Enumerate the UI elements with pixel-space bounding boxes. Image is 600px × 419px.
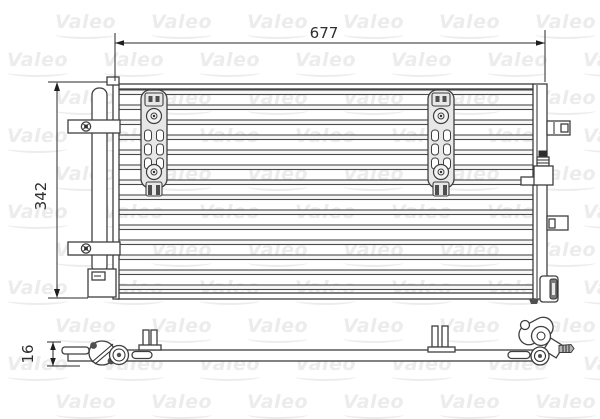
core-tube [119, 195, 533, 200]
condenser-technical-drawing: 677 342 [0, 0, 600, 400]
bracket-tab-left [139, 330, 161, 350]
port-cap [539, 151, 547, 157]
bar-slot-left [132, 352, 152, 359]
condenser-bottom-view: 16 [19, 314, 574, 366]
core-tube [119, 255, 533, 260]
core-tube [119, 135, 533, 140]
arrow-down-icon [54, 289, 60, 298]
top-left-tab [107, 77, 119, 85]
bar-slot-right [508, 352, 530, 359]
threaded-pin [559, 345, 574, 353]
bottom-right-foot [529, 299, 539, 304]
dimension-width: 677 [115, 24, 545, 82]
core-tubes [119, 90, 533, 290]
core-tube [119, 180, 533, 185]
drier-clamp-upper [68, 120, 120, 133]
core-tube [119, 90, 533, 95]
arrow-left-icon [115, 40, 124, 46]
arrow-right-icon [536, 40, 545, 46]
technical-drawing-page: { "watermark": { "text": "Valeo" }, "dim… [0, 0, 600, 400]
core-tube [119, 225, 533, 230]
dimension-height-label: 342 [32, 182, 50, 211]
mounting-bracket [141, 90, 167, 196]
core-tube [119, 240, 533, 245]
bracket-tab-middle [428, 326, 455, 352]
arrow-up-icon [54, 82, 60, 91]
core-tube [119, 105, 533, 110]
drier-clamp-lower [68, 242, 120, 255]
lower-right-connector [547, 216, 568, 230]
mounting-bracket [428, 90, 454, 196]
core-bottom-bar [117, 293, 533, 299]
receiver-drier [68, 88, 120, 297]
core-tube [119, 210, 533, 215]
condenser-front-view: 677 342 [32, 24, 570, 304]
bottom-right-valve-block [540, 276, 558, 302]
core-tube [119, 150, 533, 155]
right-tank [533, 84, 547, 299]
core-tube [119, 165, 533, 170]
arrow-up-icon [50, 342, 56, 350]
core-top-bar [117, 84, 533, 89]
left-header [113, 84, 119, 299]
dimension-depth-label: 16 [19, 344, 37, 363]
upper-right-connector [547, 121, 570, 135]
core-tube [119, 285, 533, 290]
core-tube [119, 270, 533, 275]
arrow-down-icon [50, 358, 56, 366]
core-tube [119, 120, 533, 125]
dimension-width-label: 677 [310, 24, 339, 42]
